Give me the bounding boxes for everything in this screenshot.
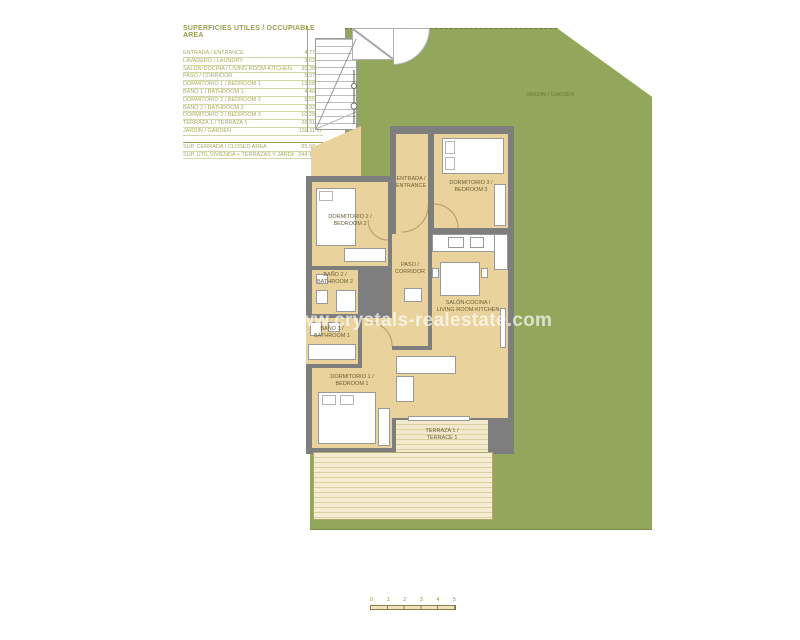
property-boundary-line xyxy=(307,26,308,132)
legend-row-label: TERRAZA 1 / TERRAZA 1 xyxy=(183,120,247,127)
legend-row: JARDIN / GARDEN 132.11 m² xyxy=(183,128,323,136)
wardrobe-bedroom2 xyxy=(344,248,386,262)
dining-table xyxy=(440,262,480,296)
dining-chair xyxy=(481,268,488,278)
legend-row-label: DORMITORIO 1 / BEDROOM 1 xyxy=(183,81,261,88)
label-bedroom1: DORMITORIO 1 /BEDROOM 1 xyxy=(312,374,392,388)
staircase xyxy=(315,38,357,130)
shower-bathroom2 xyxy=(336,290,356,312)
terrace-sliding-door xyxy=(408,416,470,421)
scale-tick: 4 xyxy=(436,597,439,603)
kitchen-sink xyxy=(470,237,484,248)
garden-label: JARDIN / GARDEN xyxy=(500,92,600,98)
watermark: www.crystals-realestate.com xyxy=(284,310,544,332)
pillow xyxy=(319,191,333,201)
dining-chair xyxy=(432,268,439,278)
legend-summary-label: SUP. CERRADA / CLOSED AREA xyxy=(183,144,267,151)
legend-row: DORMITORIO 1 / BEDROOM 1 13.68 m² xyxy=(183,81,323,89)
scale-bar: 012345 xyxy=(370,597,456,610)
bathtub-bathroom1 xyxy=(308,344,356,360)
label-bathroom2: BAÑO 2 /BATHROOM 2 xyxy=(312,272,358,286)
legend-row: ENTRADA / ENTRANCE 4.77 m² xyxy=(183,50,323,58)
pillow xyxy=(340,395,354,405)
legend-row: LAVADERO / LAUNDRY 3.62 m² xyxy=(183,58,323,66)
legend-row-label: SALÓN-COCINA / LIVING ROOM-KITCHEN xyxy=(183,66,292,73)
label-corridor: PASO /CORRIDOR xyxy=(392,262,428,276)
kitchen-appliance-column xyxy=(494,234,508,270)
label-terrace: TERRAZA 1 /TERRACE 1 xyxy=(394,428,490,442)
legend-summary-row: SUP. ÚTIL VIVIENDA + TERRAZAS Y JARDÍN 2… xyxy=(183,152,323,160)
legend-row: DORMITORIO 2 / BEDROOM 2 9.55 m² xyxy=(183,97,323,105)
label-bedroom2: DORMITORIO 2 /BEDROOM 2 xyxy=(312,214,388,228)
kitchen-counter xyxy=(432,234,496,252)
scale-tick: 5 xyxy=(453,597,456,603)
legend-row-label: JARDIN / GARDEN xyxy=(183,128,231,135)
label-entrance: ENTRADA /ENTRANCE xyxy=(388,176,434,190)
pillow xyxy=(445,157,455,170)
garden-deck xyxy=(313,452,493,520)
toilet-bathroom2 xyxy=(316,290,328,304)
legend-row: TERRAZA 1 / TERRAZA 1 26.91 m² xyxy=(183,120,323,128)
legend-summary-rows: SUP. CERRADA / CLOSED AREA 85.08 m² SUP.… xyxy=(183,142,323,160)
legend-summary-label: SUP. ÚTIL VIVIENDA + TERRAZAS Y JARDÍN xyxy=(183,152,294,159)
scale-tick: 0 xyxy=(370,597,373,603)
scale-tick: 3 xyxy=(420,597,423,603)
entry-gate-structure xyxy=(352,28,394,60)
legend-row: BAÑO 1 / BATHROOM 1 4.40 m² xyxy=(183,89,323,97)
legend-title: SUPERFICIES UTILES / OCCUPIABLE AREA xyxy=(183,25,325,39)
legend-row: PASO / CORRIDOR 5.07 m² xyxy=(183,73,323,81)
corridor-closet xyxy=(404,288,422,302)
sofa-chaise xyxy=(396,376,414,402)
legend-row: BAÑO 2 / BATHROOM 2 3.92 m² xyxy=(183,105,323,113)
scale-tick: 2 xyxy=(403,597,406,603)
wardrobe-bedroom1 xyxy=(378,408,390,446)
legend-row-label: PASO / CORRIDOR xyxy=(183,73,232,80)
legend-row-label: BAÑO 1 / BATHROOM 1 xyxy=(183,89,244,96)
label-bedroom3: DORMITORIO 3 /BEDROOM 3 xyxy=(434,180,508,194)
legend-row-label: BAÑO 2 / BATHROOM 2 xyxy=(183,105,244,112)
area-legend: SUPERFICIES UTILES / OCCUPIABLE AREA ENT… xyxy=(183,25,325,159)
legend-row: DORMITORIO 3 / BEDROOM 3 10.28 m² xyxy=(183,112,323,120)
legend-row: SALÓN-COCINA / LIVING ROOM-KITCHEN 30.38… xyxy=(183,66,323,74)
legend-row-label: DORMITORIO 2 / BEDROOM 2 xyxy=(183,97,261,104)
floorplan-page: SUPERFICIES UTILES / OCCUPIABLE AREA ENT… xyxy=(0,0,800,640)
kitchen-hob xyxy=(448,237,464,248)
legend-row-label: DORMITORIO 3 / BEDROOM 3 xyxy=(183,112,261,119)
pillow xyxy=(322,395,336,405)
scale-tick: 1 xyxy=(387,597,390,603)
sofa xyxy=(396,356,456,374)
scale-numbers: 012345 xyxy=(370,597,456,603)
legend-summary-row: SUP. CERRADA / CLOSED AREA 85.08 m² xyxy=(183,144,323,152)
legend-rows: ENTRADA / ENTRANCE 4.77 m² LAVADERO / LA… xyxy=(183,50,323,136)
legend-row-label: ENTRADA / ENTRANCE xyxy=(183,50,244,57)
scale-strip xyxy=(370,605,456,610)
pillow xyxy=(445,141,455,154)
legend-row-label: LAVADERO / LAUNDRY xyxy=(183,58,243,65)
